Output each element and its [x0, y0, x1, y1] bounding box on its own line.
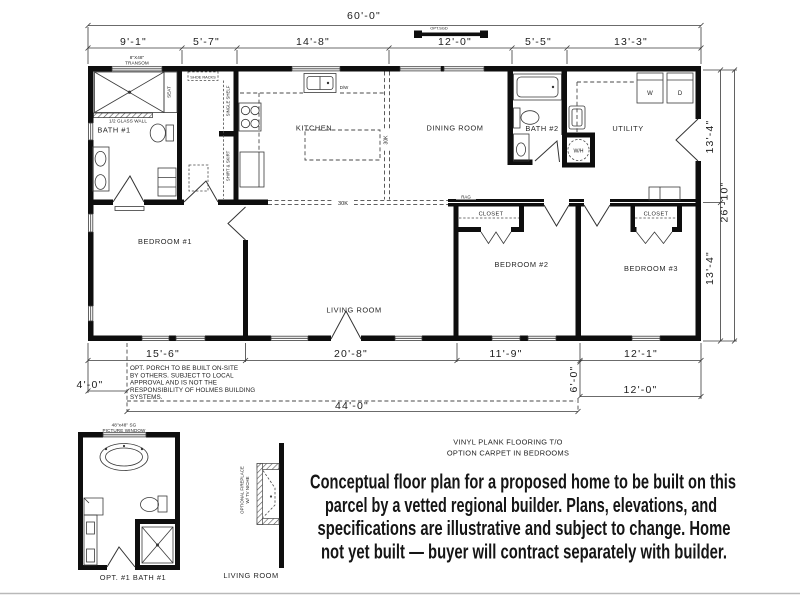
svg-text:BATH #2: BATH #2	[525, 124, 558, 133]
svg-text:5'-7": 5'-7"	[193, 36, 220, 48]
svg-text:OPT. #1 BATH #1: OPT. #1 BATH #1	[100, 573, 166, 582]
svg-text:LIVING ROOM: LIVING ROOM	[326, 306, 381, 315]
svg-text:OPT.SGD: OPT.SGD	[430, 26, 448, 31]
svg-text:BEDROOM #1: BEDROOM #1	[138, 237, 192, 246]
svg-text:APPROVAL AND IS NOT THE: APPROVAL AND IS NOT THE	[130, 380, 217, 387]
svg-text:SINGLE SHELF: SINGLE SHELF	[226, 85, 231, 116]
svg-text:48"x48" SG: 48"x48" SG	[112, 423, 137, 428]
svg-text:BEDROOM #2: BEDROOM #2	[495, 260, 549, 269]
svg-text:W/H: W/H	[573, 149, 583, 155]
svg-text:OPTION CARPET IN BEDROOMS: OPTION CARPET IN BEDROOMS	[447, 449, 569, 458]
svg-text:44'-0": 44'-0"	[335, 400, 369, 412]
svg-text:D: D	[678, 91, 683, 97]
svg-text:UTILITY: UTILITY	[612, 124, 643, 133]
svg-text:RESPONSIBILITY OF HOLMES BUILD: RESPONSIBILITY OF HOLMES BUILDING	[130, 387, 255, 394]
svg-text:OPTIONAL FIREPLACE: OPTIONAL FIREPLACE	[240, 466, 245, 514]
svg-text:TRANSOM: TRANSOM	[125, 61, 149, 66]
svg-text:12'-0": 12'-0"	[438, 36, 472, 48]
svg-text:SHIRT & SKIRT: SHIRT & SKIRT	[226, 150, 231, 181]
svg-text:12'-1": 12'-1"	[624, 348, 658, 360]
svg-text:VINYL PLANK FLOORING T/O: VINYL PLANK FLOORING T/O	[453, 438, 562, 447]
svg-text:BY OTHERS. SUBJECT TO LOCAL: BY OTHERS. SUBJECT TO LOCAL	[130, 372, 234, 379]
svg-text:W: W	[647, 91, 653, 97]
svg-text:SHOE RACKS: SHOE RACKS	[190, 75, 216, 80]
svg-text:RAG: RAG	[461, 195, 471, 200]
svg-text:D/W: D/W	[340, 85, 349, 90]
svg-text:11'-9": 11'-9"	[489, 348, 522, 360]
svg-text:30K: 30K	[338, 201, 348, 207]
svg-text:5'-5": 5'-5"	[525, 36, 552, 48]
svg-text:14'-8": 14'-8"	[296, 36, 330, 48]
svg-text:SYSTEMS.: SYSTEMS.	[130, 394, 163, 401]
svg-text:13'-3": 13'-3"	[614, 36, 648, 48]
svg-text:4'-0": 4'-0"	[77, 379, 104, 391]
svg-text:CLOSET: CLOSET	[479, 212, 504, 218]
svg-text:CLOSET: CLOSET	[644, 212, 669, 218]
svg-text:13'-4": 13'-4"	[704, 120, 716, 154]
svg-text:PICTURE WINDOW: PICTURE WINDOW	[103, 428, 147, 433]
svg-text:not yet built — buyer will con: not yet built — buyer will contract sepa…	[321, 541, 727, 563]
svg-text:13'-4": 13'-4"	[704, 251, 716, 285]
svg-text:SEAT: SEAT	[167, 86, 172, 98]
svg-text:parcel by a vetted regional bu: parcel by a vetted regional builder. Pla…	[325, 495, 717, 517]
svg-text:8"X48": 8"X48"	[130, 55, 145, 60]
svg-text:20'-8": 20'-8"	[334, 348, 368, 360]
svg-text:BEDROOM #3: BEDROOM #3	[624, 264, 678, 273]
svg-text:26'-10": 26'-10"	[719, 182, 731, 223]
svg-text:1/2 GLASS WALL: 1/2 GLASS WALL	[109, 119, 147, 124]
svg-text:9'-1": 9'-1"	[120, 36, 147, 48]
svg-text:W/ TV NICHE: W/ TV NICHE	[245, 476, 250, 503]
svg-text:Conceptual floor plan for a pr: Conceptual floor plan for a proposed hom…	[310, 472, 736, 494]
svg-text:specifications are illustrativ: specifications are illustrative and subj…	[318, 518, 731, 540]
svg-text:15'-6": 15'-6"	[146, 348, 180, 360]
svg-text:OPT. PORCH TO BE BUILT ON-SITE: OPT. PORCH TO BE BUILT ON-SITE	[130, 365, 238, 372]
svg-text:60'-0": 60'-0"	[347, 10, 381, 22]
svg-text:6'-0": 6'-0"	[568, 366, 580, 393]
svg-text:LIVING ROOM: LIVING ROOM	[223, 571, 278, 580]
svg-text:DINING ROOM: DINING ROOM	[427, 124, 484, 133]
svg-text:KITCHEN: KITCHEN	[296, 124, 332, 133]
svg-text:12'-0": 12'-0"	[624, 384, 658, 396]
svg-text:30K: 30K	[384, 135, 390, 145]
svg-text:BATH #1: BATH #1	[97, 126, 130, 135]
